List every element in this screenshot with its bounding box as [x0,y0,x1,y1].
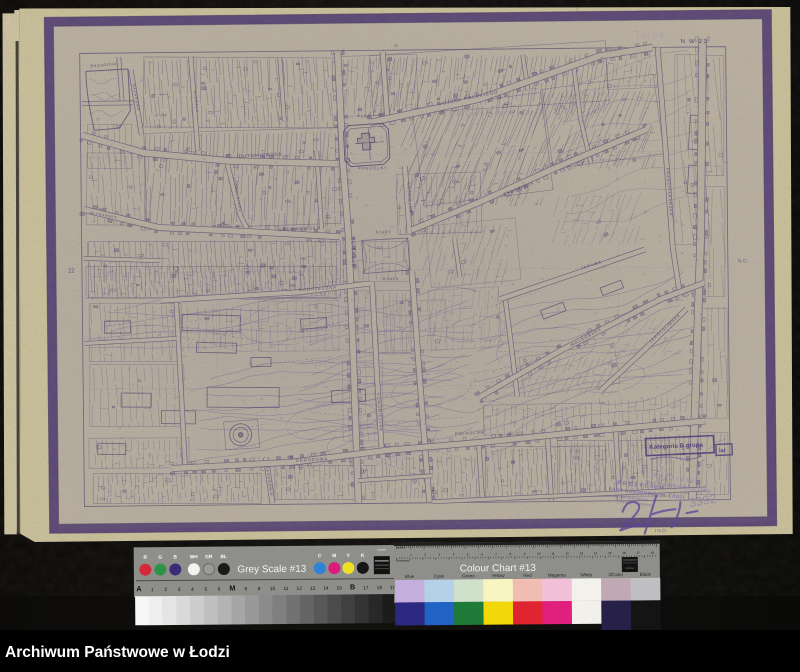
svg-text:8: 8 [244,586,247,592]
svg-text:5: 5 [204,587,207,593]
svg-text:Red: Red [523,573,532,578]
svg-text:10: 10 [270,586,276,592]
svg-text:1: 1 [151,587,154,593]
svg-text:10: 10 [537,552,541,556]
svg-text:2: 2 [164,587,167,593]
svg-text:15: 15 [337,586,343,592]
svg-text:Cyan: Cyan [434,574,445,579]
svg-text:Archiwum Państwowe w Łodzi: Archiwum Państwowe w Łodzi [5,644,230,661]
svg-text:KODAK: KODAK [377,548,386,552]
svg-text:WH: WH [190,554,199,560]
svg-text:M: M [229,583,235,592]
svg-text:M: M [332,553,336,559]
svg-text:G: G [158,555,162,561]
svg-text:Magenta: Magenta [548,573,566,578]
svg-text:18: 18 [377,585,383,591]
svg-text:B: B [173,554,177,560]
svg-text:4: 4 [191,587,194,593]
svg-text:Black: Black [640,572,652,577]
svg-text:11: 11 [283,586,288,592]
svg-text:17: 17 [636,551,640,555]
svg-text:13: 13 [580,551,584,555]
svg-text:KODAK: KODAK [626,567,635,570]
svg-text:R: R [143,555,147,561]
svg-text:17: 17 [363,585,369,591]
svg-text:Yellow: Yellow [491,573,505,578]
svg-text:12: 12 [565,552,569,556]
svg-text:A: A [136,584,141,593]
svg-text:11: 11 [551,552,554,556]
svg-text:3/Color: 3/Color [608,572,623,577]
svg-text:15: 15 [608,551,612,555]
svg-text:12: 12 [297,586,303,592]
svg-text:6: 6 [218,587,221,593]
svg-text:B: B [350,582,355,591]
svg-text:3: 3 [178,587,181,593]
svg-text:13: 13 [310,586,316,592]
svg-text:14: 14 [323,586,329,592]
svg-text:14: 14 [594,551,598,555]
svg-text:GR: GR [205,554,213,560]
svg-text:Centimetres: Centimetres [396,558,411,562]
svg-text:16: 16 [622,551,626,555]
svg-text:9: 9 [258,586,261,592]
svg-text:18: 18 [651,551,655,555]
svg-text:Inches: Inches [397,545,406,549]
svg-text:White: White [580,572,592,577]
svg-text:C: C [318,553,322,559]
svg-text:Blue: Blue [405,574,415,579]
svg-text:K: K [361,553,365,559]
svg-text:BL: BL [221,554,228,560]
svg-text:Grey Scale #13: Grey Scale #13 [237,564,306,576]
svg-text:Green: Green [462,573,475,578]
